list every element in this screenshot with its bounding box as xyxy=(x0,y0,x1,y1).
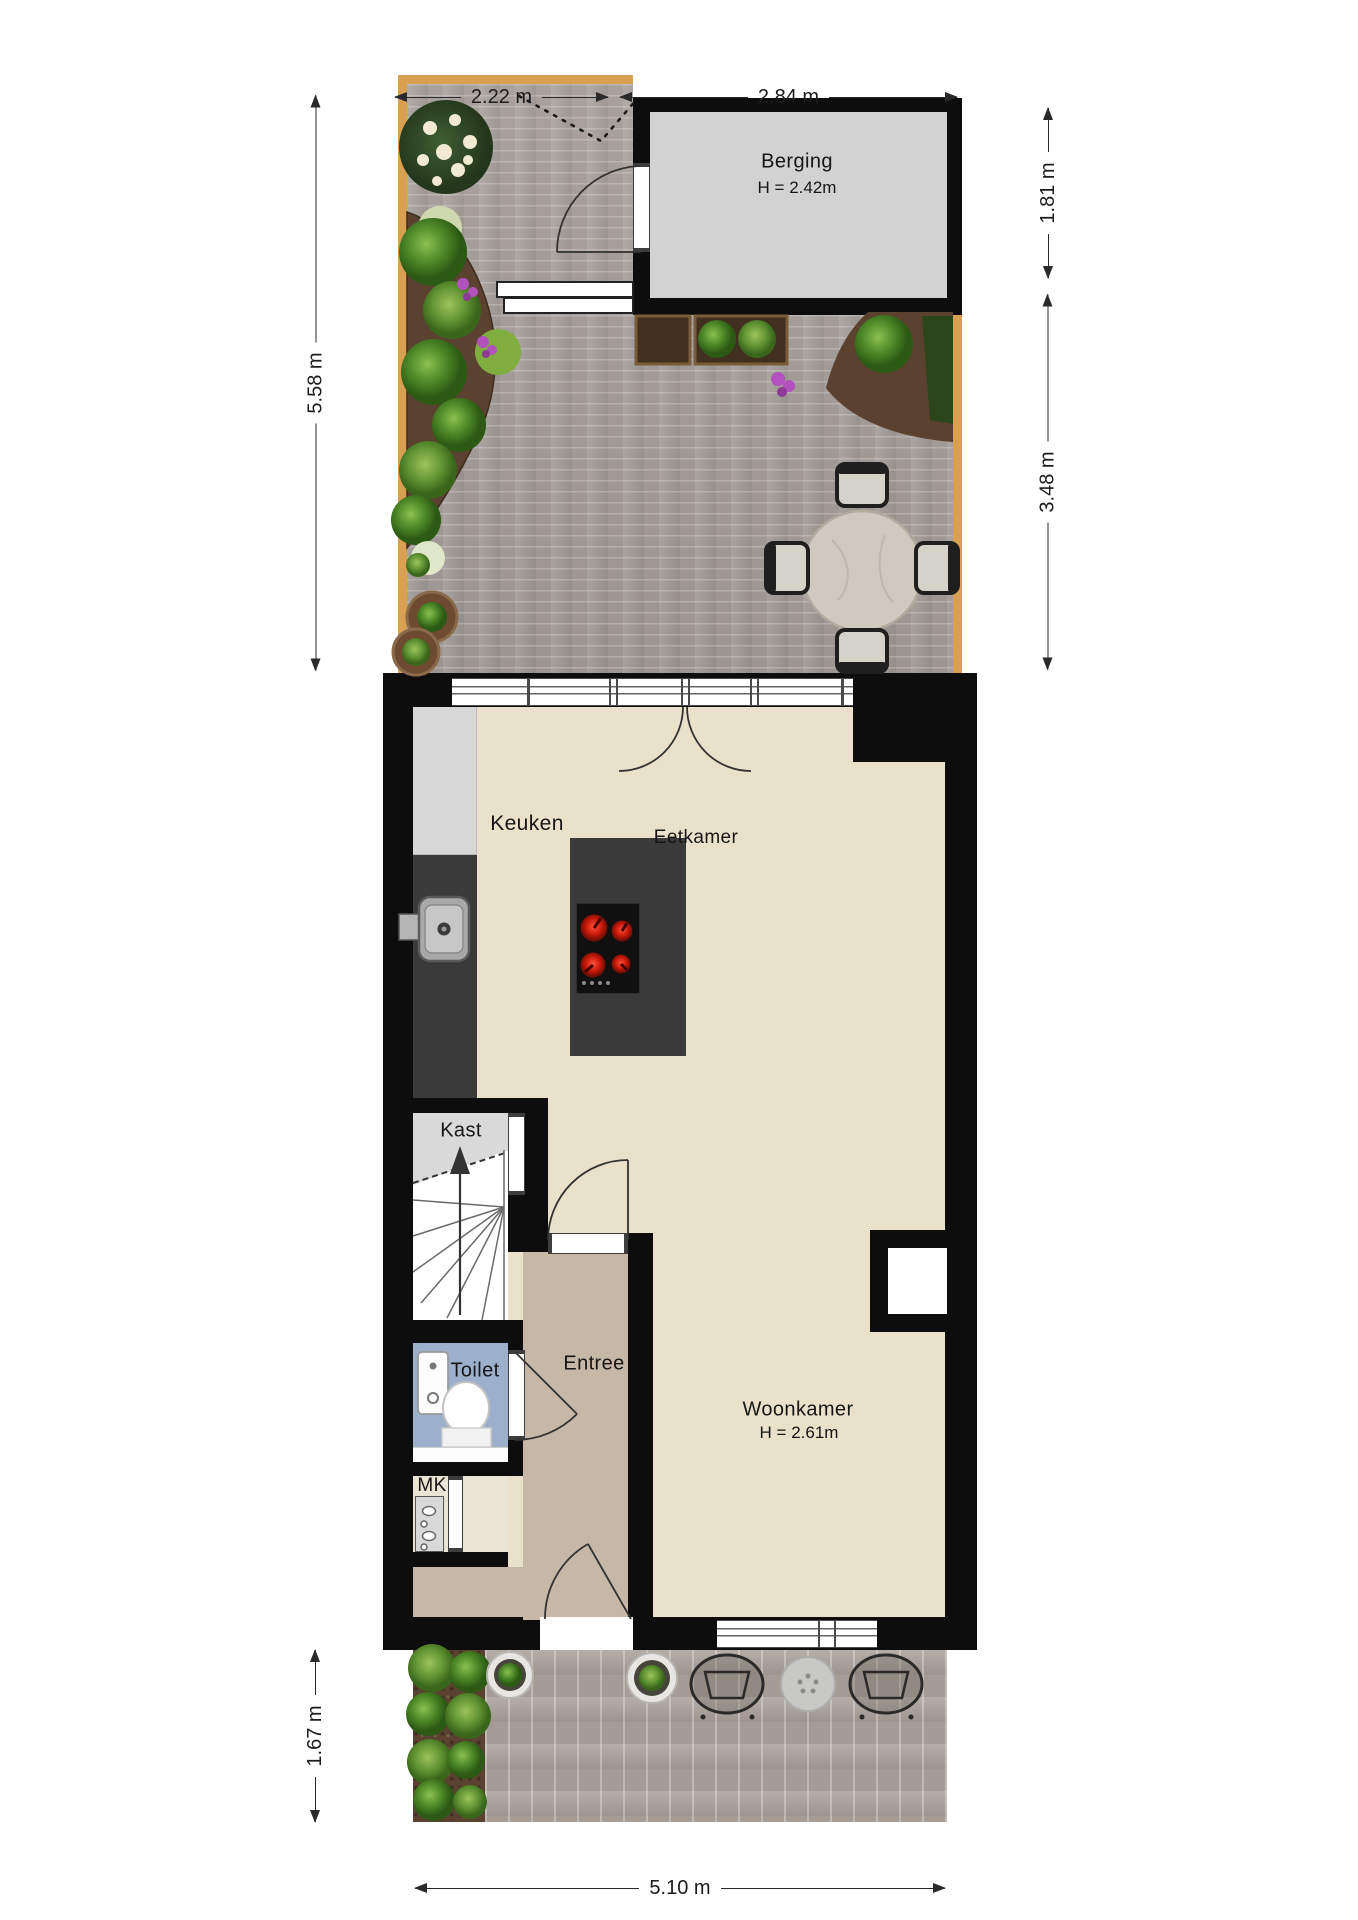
dim-line xyxy=(315,96,316,343)
toilet-ledge xyxy=(413,1447,508,1462)
window-mullion xyxy=(818,1621,820,1647)
woonkamer-height: H = 2.61m xyxy=(760,1423,839,1443)
kast-door xyxy=(508,1113,525,1195)
dim-berging-depth: 1.81 m xyxy=(1036,108,1060,278)
keuken-label: Keuken xyxy=(490,812,564,836)
dim-line xyxy=(415,1888,639,1889)
dim-label: 5.58 m xyxy=(304,342,327,423)
dim-line xyxy=(315,424,316,671)
dim-house-width: 5.10 m xyxy=(415,1876,945,1900)
dim-garden-width-left: 2.22 m xyxy=(395,85,608,109)
berging-height: H = 2.42m xyxy=(758,178,837,198)
entree-living-door xyxy=(548,1233,628,1254)
dim-line xyxy=(1048,108,1049,152)
dim-label: 2.84 m xyxy=(748,86,829,109)
dim-line xyxy=(395,97,461,98)
eetkamer-label: Eetkamer xyxy=(654,827,739,849)
stair-entree-wall xyxy=(508,1195,523,1252)
mk-bottom-wall xyxy=(413,1552,508,1567)
wall-niche xyxy=(888,1248,947,1314)
dim-line xyxy=(1047,523,1048,670)
dim-label: 2.22 m xyxy=(461,86,542,109)
mk-door xyxy=(448,1476,463,1552)
entree-floor xyxy=(523,1252,628,1620)
door-frame-stile xyxy=(750,679,752,705)
dim-label: 1.67 m xyxy=(304,1695,327,1776)
dim-garden-depth: 5.58 m xyxy=(304,96,328,671)
dim-garden-width-right: 2.84 m xyxy=(620,85,957,109)
window-mullion xyxy=(527,679,530,705)
dim-label: 3.48 m xyxy=(1036,441,1059,522)
kitchen-tall-cabinet xyxy=(413,707,477,855)
floor-plan: Berging H = 2.42m Keuken Eetkamer Kast T… xyxy=(0,0,1358,1920)
meter-panel xyxy=(415,1496,444,1552)
stairwell-floor xyxy=(413,1113,508,1320)
mk-label: MK xyxy=(417,1475,446,1497)
toilet-door xyxy=(508,1350,525,1440)
dim-line xyxy=(620,97,748,98)
cooktop xyxy=(576,903,640,994)
entree-living-wall xyxy=(628,1233,653,1620)
stair-bottom-wall xyxy=(413,1320,523,1343)
rear-corner-wall xyxy=(853,707,945,762)
dim-label: 5.10 m xyxy=(639,1877,720,1900)
front-fern-bed xyxy=(413,1650,485,1822)
dim-line xyxy=(315,1777,316,1822)
dim-front-garden-depth: 1.67 m xyxy=(303,1650,327,1822)
dim-line xyxy=(721,1888,945,1889)
woonkamer-label: Woonkamer xyxy=(742,1399,853,1422)
toilet-label: Toilet xyxy=(450,1360,499,1383)
dim-line xyxy=(1047,295,1048,442)
dim-line xyxy=(1048,234,1049,278)
entree-label: Entree xyxy=(563,1353,624,1376)
dim-label: 1.81 m xyxy=(1037,152,1060,233)
dim-line xyxy=(315,1650,316,1695)
berging-door xyxy=(633,163,650,252)
front-paving xyxy=(485,1650,947,1822)
toilet-mk-wall xyxy=(413,1462,523,1476)
stair-dining-wall xyxy=(523,1098,548,1252)
rear-glazing xyxy=(452,678,853,706)
door-meeting-stile xyxy=(681,679,683,705)
front-door-opening xyxy=(540,1617,633,1650)
dim-garden-lower-depth: 3.48 m xyxy=(1036,295,1060,670)
window-mullion xyxy=(834,1621,836,1647)
front-window xyxy=(717,1620,877,1648)
kitchen-counter xyxy=(413,855,477,1098)
entree-floor xyxy=(413,1567,628,1617)
berging-floor xyxy=(650,112,947,298)
door-frame-stile xyxy=(616,679,618,705)
berging-label: Berging xyxy=(761,151,833,174)
door-meeting-stile xyxy=(688,679,690,705)
kast-label: Kast xyxy=(440,1120,482,1143)
window-mullion xyxy=(841,679,844,705)
door-frame-stile xyxy=(757,679,759,705)
dim-line xyxy=(829,97,957,98)
dim-line xyxy=(542,97,608,98)
door-frame-stile xyxy=(609,679,611,705)
